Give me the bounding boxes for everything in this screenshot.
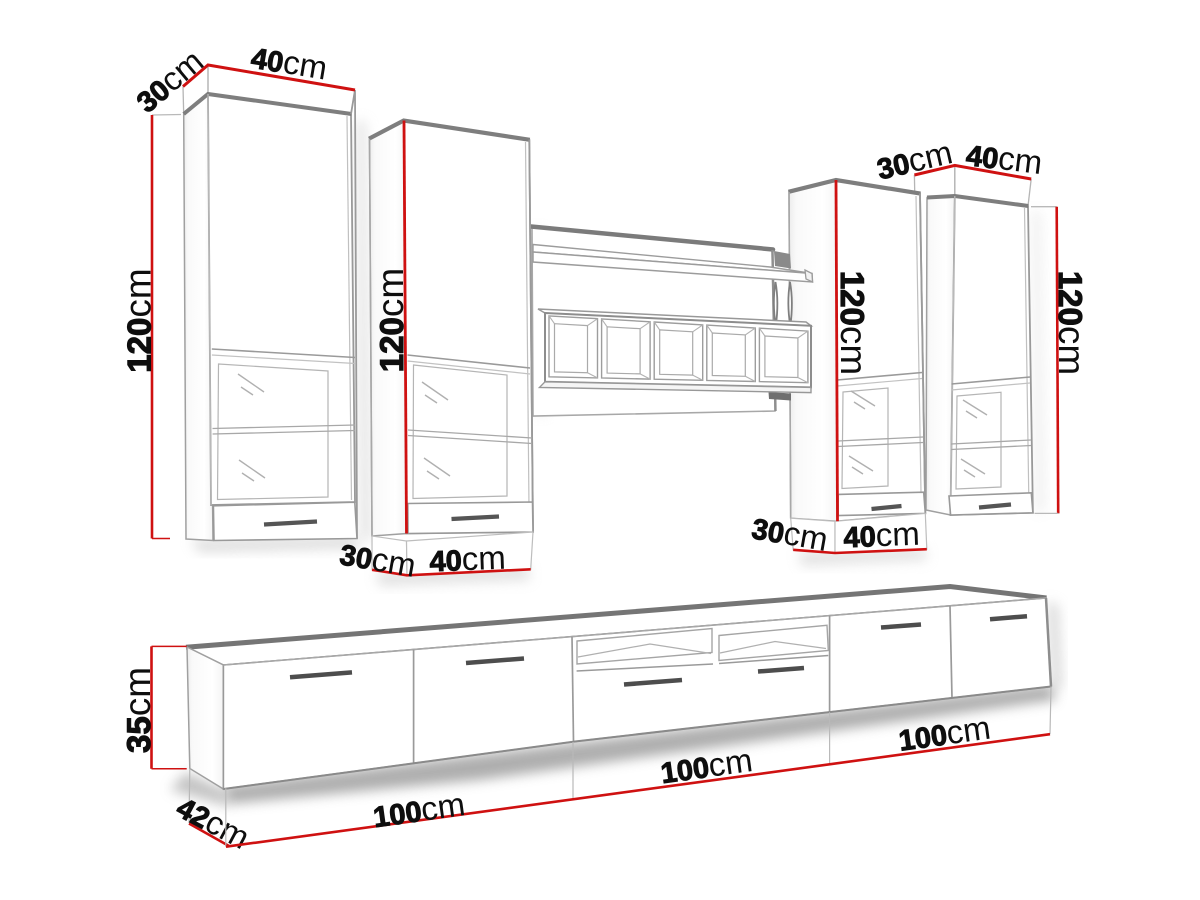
svg-text:120cm: 120cm xyxy=(1051,271,1092,375)
svg-text:120cm: 120cm xyxy=(370,268,411,372)
svg-text:120cm: 120cm xyxy=(118,268,159,372)
svg-text:35cm: 35cm xyxy=(117,667,158,753)
svg-text:120cm: 120cm xyxy=(833,271,874,375)
